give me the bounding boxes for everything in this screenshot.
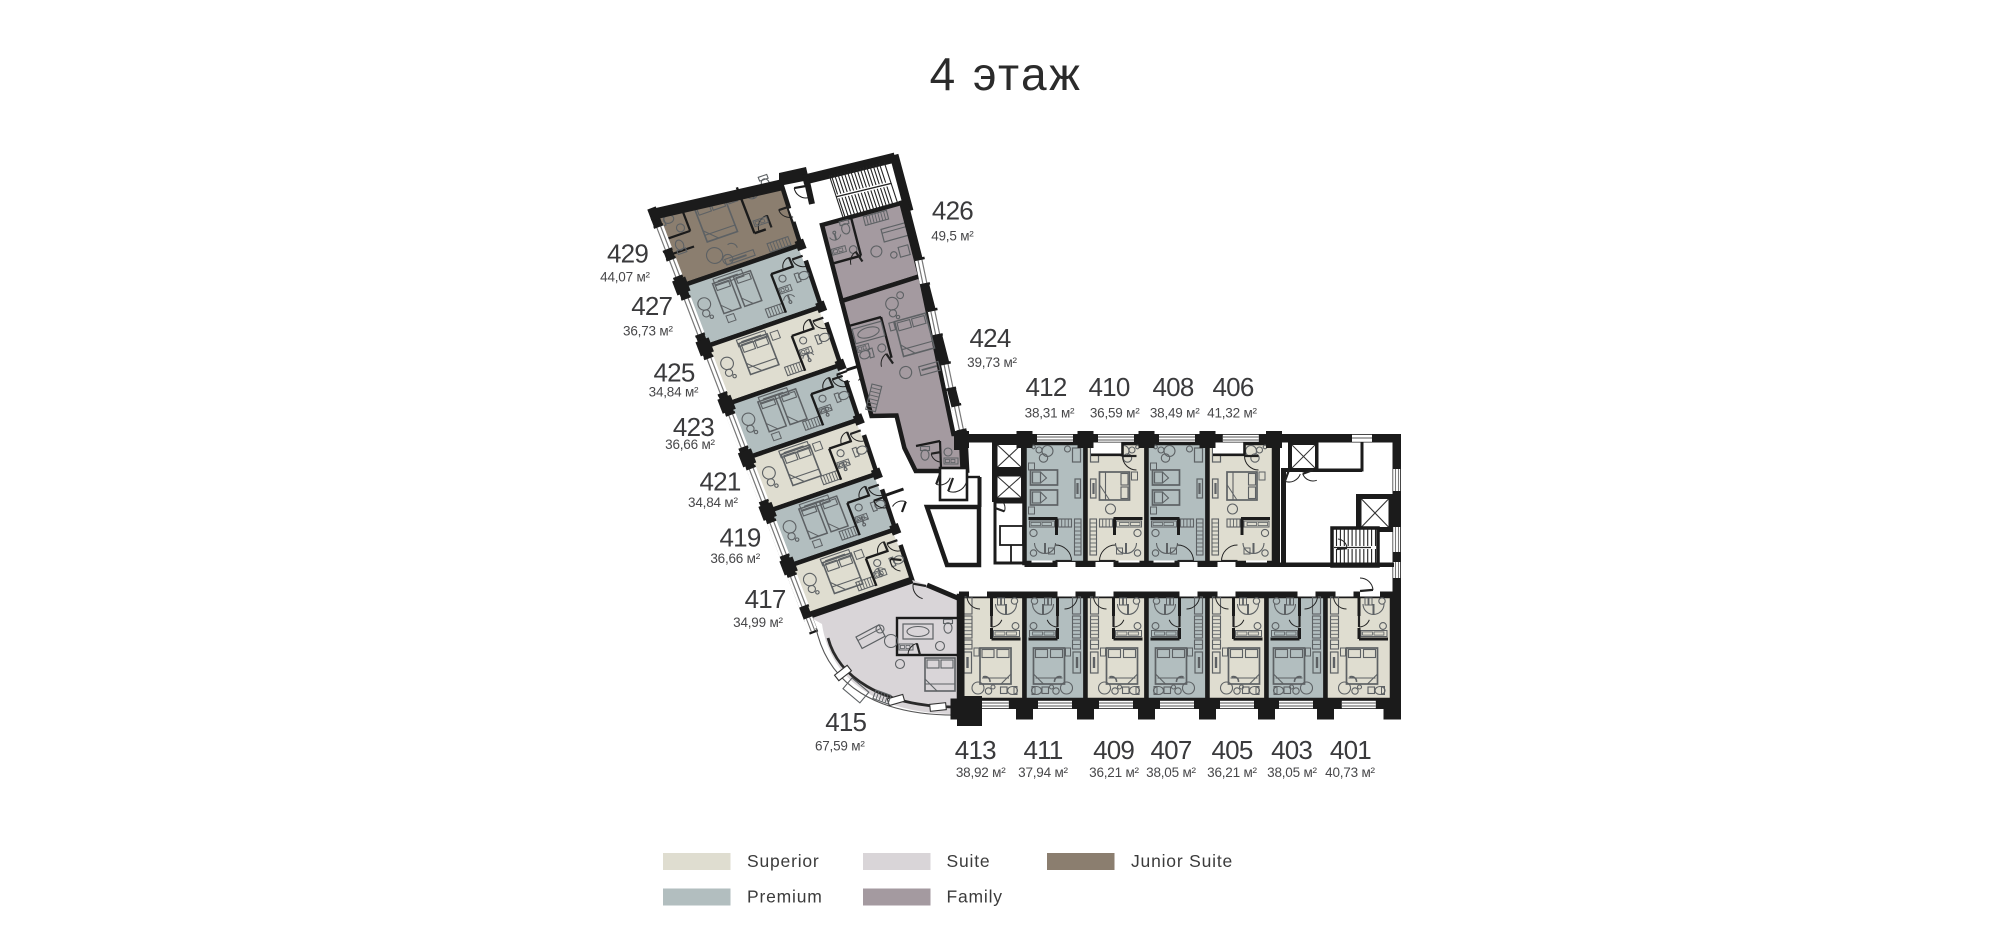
svg-text:4 этаж: 4 этаж [930, 48, 1083, 100]
svg-text:36,73 м²: 36,73 м² [623, 323, 673, 338]
svg-text:408: 408 [1153, 372, 1194, 402]
svg-text:36,59 м²: 36,59 м² [1090, 406, 1140, 421]
svg-text:36,21 м²: 36,21 м² [1207, 765, 1257, 780]
svg-text:410: 410 [1089, 372, 1130, 402]
svg-text:413: 413 [955, 735, 996, 765]
svg-text:Suite: Suite [947, 851, 991, 871]
svg-text:39,73 м²: 39,73 м² [967, 355, 1017, 370]
svg-text:411: 411 [1023, 735, 1062, 765]
svg-text:37,94 м²: 37,94 м² [1018, 765, 1068, 780]
svg-text:427: 427 [631, 291, 672, 321]
svg-text:34,84 м²: 34,84 м² [649, 385, 699, 400]
svg-text:424: 424 [970, 323, 1011, 353]
svg-text:38,49 м²: 38,49 м² [1150, 406, 1200, 421]
svg-text:405: 405 [1212, 735, 1253, 765]
svg-text:36,66 м²: 36,66 м² [710, 551, 760, 566]
svg-text:44,07 м²: 44,07 м² [600, 269, 650, 284]
svg-text:36,21 м²: 36,21 м² [1089, 765, 1139, 780]
svg-text:67,59 м²: 67,59 м² [815, 739, 865, 754]
svg-text:417: 417 [745, 584, 786, 614]
svg-text:429: 429 [607, 239, 648, 269]
svg-text:Premium: Premium [747, 887, 823, 907]
svg-text:412: 412 [1026, 372, 1067, 402]
svg-text:409: 409 [1093, 735, 1134, 765]
svg-text:38,05 м²: 38,05 м² [1146, 765, 1196, 780]
svg-text:40,73 м²: 40,73 м² [1325, 765, 1375, 780]
svg-text:Superior: Superior [747, 851, 820, 871]
svg-text:419: 419 [720, 523, 761, 553]
svg-text:38,92 м²: 38,92 м² [956, 765, 1006, 780]
svg-text:403: 403 [1271, 735, 1312, 765]
svg-text:Junior Suite: Junior Suite [1131, 851, 1233, 871]
svg-text:406: 406 [1213, 372, 1254, 402]
svg-text:401: 401 [1330, 735, 1371, 765]
svg-text:425: 425 [654, 357, 695, 387]
svg-text:421: 421 [700, 467, 741, 497]
svg-text:38,05 м²: 38,05 м² [1267, 765, 1317, 780]
svg-text:426: 426 [932, 196, 973, 226]
svg-text:34,84 м²: 34,84 м² [688, 495, 738, 510]
svg-text:Family: Family [947, 887, 1003, 907]
svg-text:407: 407 [1151, 735, 1192, 765]
svg-text:415: 415 [825, 707, 866, 737]
svg-text:49,5 м²: 49,5 м² [931, 229, 974, 244]
svg-text:38,31 м²: 38,31 м² [1025, 406, 1075, 421]
svg-text:34,99 м²: 34,99 м² [733, 615, 783, 630]
svg-text:41,32 м²: 41,32 м² [1207, 406, 1257, 421]
svg-text:36,66 м²: 36,66 м² [665, 437, 715, 452]
